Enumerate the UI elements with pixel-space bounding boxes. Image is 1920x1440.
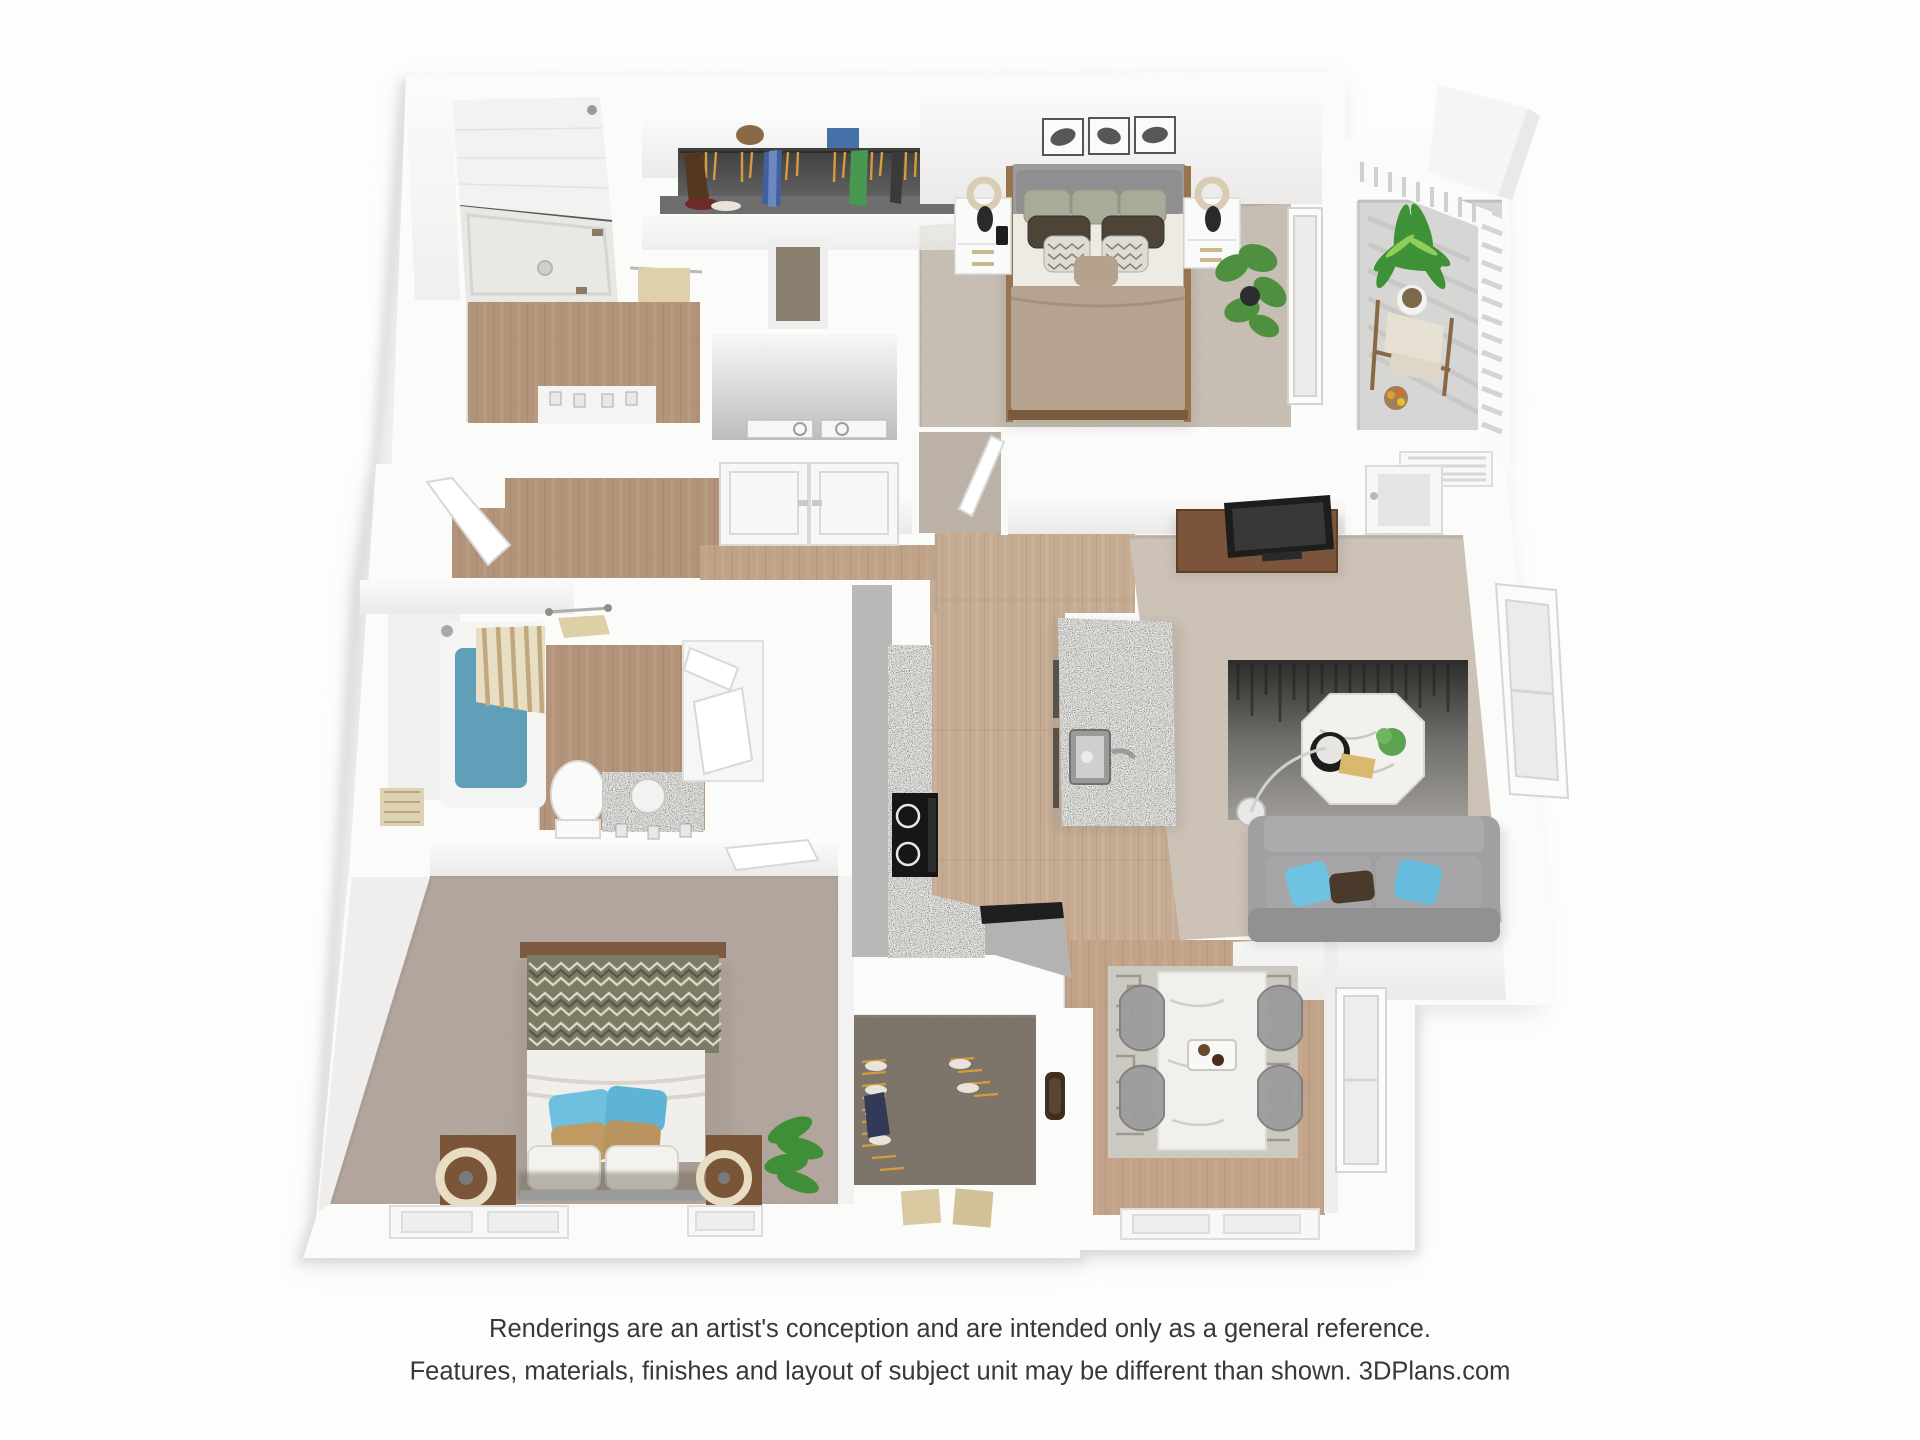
svg-text:Features, materials, finishes: Features, materials, finishes and layout… [410, 1358, 1511, 1386]
svg-text:Renderings are an artist's con: Renderings are an artist's conception an… [489, 1315, 1431, 1343]
